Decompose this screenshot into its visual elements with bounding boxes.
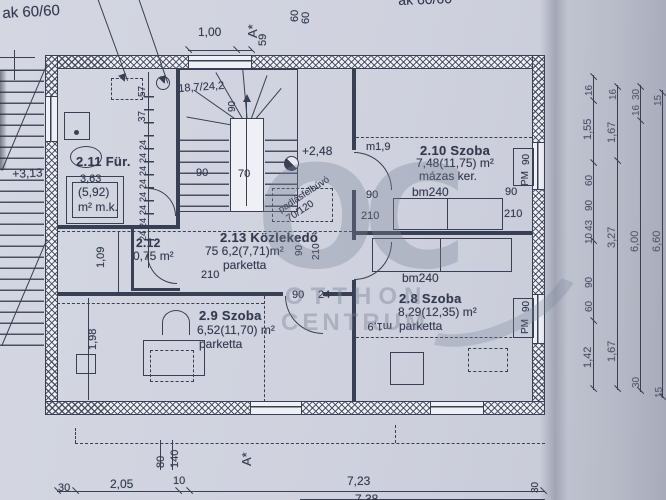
win-2-8-90r: 90	[522, 301, 533, 312]
dim-1-09: 1,09	[96, 247, 108, 268]
bed-2-10-divider	[447, 198, 448, 230]
dim-line-right-b	[617, 85, 618, 390]
room-2-11-area1: 3,63	[80, 174, 101, 186]
stair-dim-70: 70	[238, 169, 250, 181]
paper-fold-shadow	[540, 0, 666, 500]
room-2-9-area: 6,52(11,70) m²	[197, 324, 275, 337]
room-2-13-floor: parketta	[223, 259, 266, 272]
dim-line-1-09	[118, 232, 119, 292]
stair-direction-arrow	[243, 90, 251, 102]
dim-left-57: 57	[138, 86, 149, 97]
section-marker-a-bottom: A*	[240, 452, 254, 466]
win-2-10-210: 210	[504, 209, 522, 221]
dim-left-24-6: 24	[139, 205, 148, 215]
room-2-12-area: 0,75 m²	[133, 250, 174, 263]
ceiling-line-2-8	[356, 337, 532, 338]
dim-bottom-7-23: 7,23	[347, 475, 370, 488]
armchair-2-9	[162, 310, 190, 335]
topleft-dim-line-3	[14, 50, 15, 80]
roof-line-left	[75, 428, 76, 443]
door-2-10-210: 210	[361, 211, 379, 223]
level-marker-circle	[284, 156, 299, 171]
dim-1-98: 1,98	[88, 329, 100, 350]
room-2-10-floor: mázas ker.	[419, 170, 477, 183]
win-2-10-pm: PM	[521, 171, 532, 186]
room-2-8-area: 8,29(12,35) m²	[398, 306, 477, 319]
height-m19-2-8: m1,9	[368, 319, 392, 331]
dim-line-bottom	[57, 491, 545, 492]
dim-top-60b: 60	[301, 12, 313, 24]
furniture-2-8-dashed	[468, 348, 508, 372]
room-2-8-title: 2.8 Szoba	[399, 292, 462, 306]
room-2-11-floor: m² m.k.	[78, 201, 118, 214]
dim-left-24-1: 24	[139, 140, 148, 150]
room-2-13-h210: 210	[201, 270, 219, 282]
window-left-bath	[45, 96, 58, 142]
floor-plan-scan: ak 60/60ak 60/601,00A*596060+3,132.11 Fü…	[0, 0, 666, 500]
boiler-box	[64, 112, 90, 140]
door-2-10-90: 90	[366, 190, 378, 202]
leader-line-2	[138, 0, 169, 83]
door-2-13-210: 210	[312, 243, 323, 260]
dim-left-24-7: 24	[139, 218, 148, 228]
roof-line-mid	[395, 425, 396, 443]
win-2-8-pm: PM	[521, 319, 532, 334]
bed-2-8-bm240: bm240	[402, 272, 439, 285]
door-arc-2-8	[354, 242, 392, 280]
topleft-dim-line-1	[0, 57, 35, 58]
dim-bottom-7-38: 7,38	[355, 493, 378, 500]
room-2-13-title: 2.13 Közlekedő	[220, 231, 318, 245]
level-plus-2-48: +2,48	[302, 145, 332, 158]
dim-line-right-a	[593, 75, 594, 390]
room-2-9-floor: parketta	[199, 338, 242, 351]
bed-2-8	[372, 238, 512, 272]
note-wall-top-left: ak 60/60	[2, 3, 60, 22]
dim-bottom-80: 80	[156, 456, 168, 468]
dim-left-37: 37	[138, 111, 149, 122]
bed-2-8-divider	[440, 238, 441, 272]
room-2-12-title: 2.12	[136, 237, 161, 250]
level-plus-3-13: +3,13	[12, 166, 43, 180]
window-bottom-2-8	[430, 401, 484, 415]
furniture-2-9-wall-box	[76, 354, 96, 374]
wall-2-12-bottom	[131, 288, 180, 291]
dim-line-right-d	[662, 90, 663, 398]
dim-bottom-140: 140	[170, 450, 182, 468]
win-2-10-90r: 90	[522, 154, 533, 165]
wall-core-right-c	[352, 280, 356, 402]
window-top	[188, 55, 252, 69]
roof-line-bottom	[75, 443, 545, 444]
door-arc-2-9	[285, 296, 323, 334]
dim-line-right-c	[640, 85, 641, 392]
dim-left-24-3: 24	[139, 166, 148, 176]
door-2-13-90: 90	[295, 245, 306, 256]
stair-walkline	[246, 96, 247, 206]
dim-bottom-2-05: 2,05	[110, 478, 133, 491]
door-arc-2-10	[354, 152, 392, 190]
room-2-9-title: 2.9 Szoba	[199, 309, 262, 323]
room-2-13-area: 75 6,2(7,71)m²	[205, 245, 284, 258]
ceiling-line-2-10	[356, 137, 532, 138]
stair-dim-90-top: 90	[228, 101, 239, 112]
dim-top-1-00: 1,00	[198, 26, 221, 39]
stair-dim-90: 90	[196, 168, 208, 180]
note-wall-top-right: ak 60/60	[398, 0, 452, 8]
window-bottom-2-9	[250, 401, 302, 415]
furniture-2-9-dashed	[150, 350, 194, 382]
paper-edge-left	[0, 70, 7, 170]
door-2-9-24: 24	[318, 290, 330, 302]
furniture-2-8-bottom	[390, 352, 424, 385]
dim-left-24-4: 24	[139, 179, 148, 189]
boiler-dot	[74, 130, 79, 135]
dim-bottom-10: 10	[173, 476, 185, 488]
dim-left-24-2: 24	[139, 153, 148, 163]
room-2-10-area: 7,48(11,75) m²	[416, 157, 494, 170]
wall-bath-bottom	[57, 225, 180, 229]
wall-hall-2-9-a	[57, 292, 283, 296]
wall-2-10-2-8	[352, 231, 533, 235]
ceiling-line-2-9-v	[264, 296, 265, 402]
dim-left-24-5: 24	[139, 192, 148, 202]
win-2-10-90: 90	[505, 187, 517, 199]
wall-right	[532, 55, 545, 415]
dim-bottom-30r: 30	[531, 482, 542, 493]
room-2-11-title: 2.11 Für.	[76, 155, 131, 169]
dim-line-top	[188, 50, 252, 51]
room-2-11-area2: (5,92)	[78, 186, 109, 199]
room-2-8-floor: parketta	[399, 320, 442, 333]
door-2-9-90: 90	[292, 290, 304, 302]
dim-top-59: 59	[258, 34, 270, 46]
dim-bottom-30l: 30	[58, 483, 70, 495]
height-m19-210: m1,9	[366, 142, 390, 154]
bed-2-10-bm240: bm240	[412, 186, 449, 199]
